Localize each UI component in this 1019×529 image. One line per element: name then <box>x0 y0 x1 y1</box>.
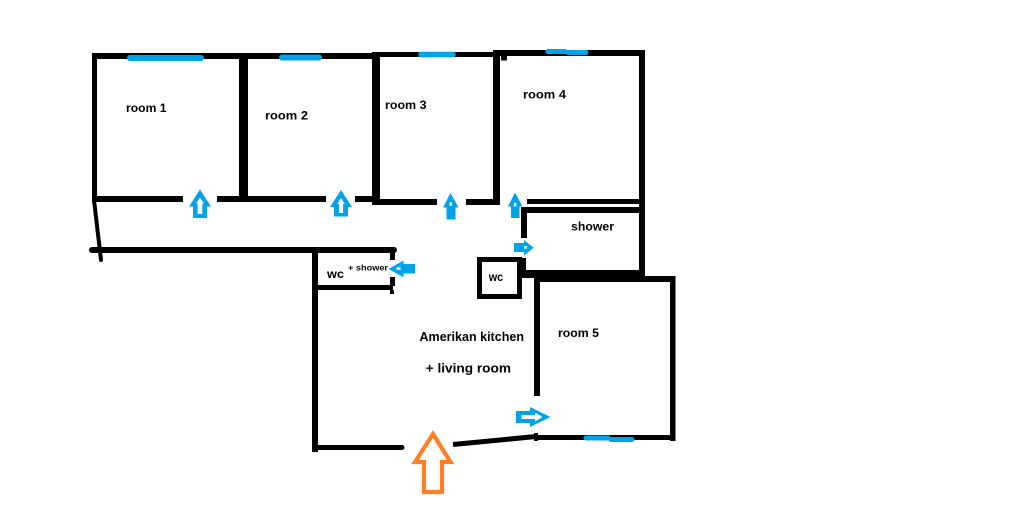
svg-text:room 3: room 3 <box>385 98 427 112</box>
svg-text:shower: shower <box>571 220 614 234</box>
svg-text:room 2: room 2 <box>265 109 308 123</box>
svg-text:+ living room: + living room <box>426 362 511 376</box>
svg-text:wc: wc <box>488 272 504 284</box>
svg-text:+ shower: + shower <box>348 263 389 273</box>
svg-text:room 1: room 1 <box>126 101 167 115</box>
svg-text:Amerikan kitchen: Amerikan kitchen <box>420 330 525 344</box>
svg-text:wc: wc <box>326 269 345 281</box>
svg-text:room 4: room 4 <box>523 88 566 102</box>
svg-text:room 5: room 5 <box>558 326 599 340</box>
